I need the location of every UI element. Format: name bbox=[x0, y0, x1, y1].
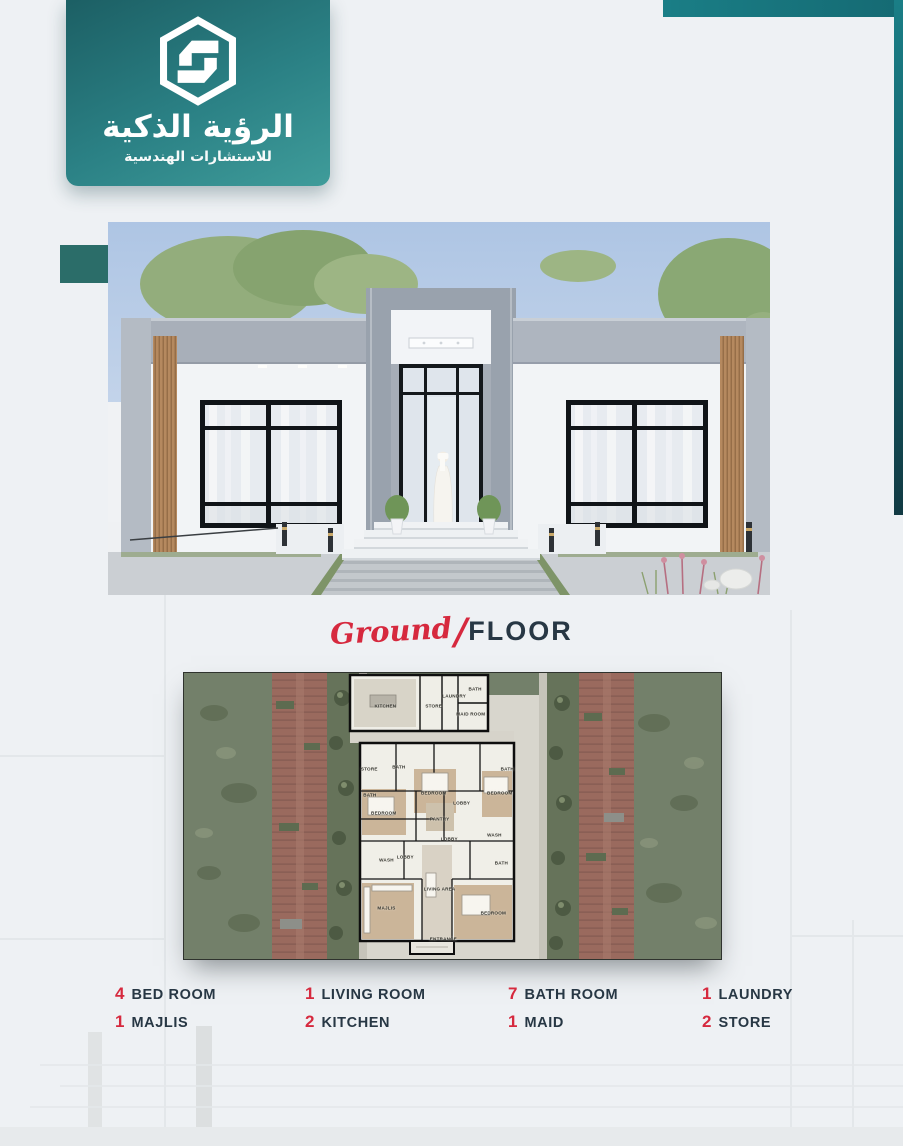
brand-name: الرؤية الذكية bbox=[102, 110, 294, 144]
stat-label: BATH ROOM bbox=[524, 987, 618, 1003]
room-label: BATH bbox=[501, 766, 514, 771]
stat-count: 1 bbox=[702, 984, 711, 1004]
room-label: BATH bbox=[495, 861, 508, 866]
stat-kitchen: 2KITCHEN bbox=[305, 1012, 508, 1032]
room-label: MAJLIS bbox=[377, 905, 395, 910]
stat-count: 2 bbox=[702, 1012, 711, 1032]
stat-count: 4 bbox=[115, 984, 124, 1004]
brand-tagline: للاستشارات الهندسية bbox=[124, 149, 272, 165]
floor-plan-labels: KITCHENSTORELAUNDRYBATHMAID ROOMSTOREBAT… bbox=[184, 673, 721, 959]
teal-accent-square bbox=[60, 245, 108, 283]
background-sketch-right-hline bbox=[790, 935, 903, 937]
floor-plan: KITCHENSTORELAUNDRYBATHMAID ROOMSTOREBAT… bbox=[183, 672, 722, 960]
room-label: LIVING AREA bbox=[424, 886, 456, 891]
stat-bath-room: 7BATH ROOM bbox=[508, 984, 702, 1004]
stat-majlis: 1MAJLIS bbox=[115, 1012, 305, 1032]
stat-count: 1 bbox=[508, 1012, 517, 1032]
stat-label: MAID bbox=[524, 1015, 563, 1031]
room-label: BEDROOM bbox=[487, 791, 512, 796]
stat-label: KITCHEN bbox=[321, 1015, 390, 1031]
room-label: BATH bbox=[392, 765, 405, 770]
house-render bbox=[108, 222, 770, 595]
background-sketch-stripe1 bbox=[40, 1064, 903, 1066]
stat-label: LAUNDRY bbox=[718, 987, 793, 1003]
background-sketch-left-hline1 bbox=[0, 755, 164, 757]
section-title-main: FLOOR bbox=[468, 616, 573, 647]
room-label: LOBBY bbox=[453, 801, 470, 806]
room-label: PANTRY bbox=[430, 816, 450, 821]
stat-label: BED ROOM bbox=[131, 987, 216, 1003]
stat-label: LIVING ROOM bbox=[321, 987, 425, 1003]
stat-count: 7 bbox=[508, 984, 517, 1004]
stat-count: 1 bbox=[115, 1012, 124, 1032]
background-sketch-stripe3 bbox=[30, 1106, 903, 1108]
room-label: BEDROOM bbox=[421, 791, 446, 796]
room-label: BEDROOM bbox=[481, 911, 506, 916]
background-sketch-right-vline2 bbox=[852, 920, 854, 1146]
stat-count: 2 bbox=[305, 1012, 314, 1032]
room-label: BATH bbox=[468, 686, 481, 691]
top-teal-bar bbox=[663, 0, 903, 17]
stat-laundry: 1LAUNDRY bbox=[702, 984, 815, 1004]
poster: الرؤية الذكية للاستشارات الهندسية bbox=[0, 0, 903, 1146]
background-sketch-left-hline2 bbox=[0, 938, 164, 940]
hexagon-s-logo-icon bbox=[150, 14, 246, 108]
stat-label: STORE bbox=[718, 1015, 771, 1031]
stat-maid: 1MAID bbox=[508, 1012, 702, 1032]
brand-badge: الرؤية الذكية للاستشارات الهندسية bbox=[66, 0, 330, 186]
room-label: BEDROOM bbox=[371, 811, 396, 816]
section-title-slash: / bbox=[454, 611, 467, 653]
room-stats: 4BED ROOM 1LIVING ROOM 7BATH ROOM 1LAUND… bbox=[115, 984, 815, 1032]
section-title-script: Ground bbox=[329, 611, 452, 651]
room-label: WASH bbox=[379, 858, 394, 863]
room-label: STORE bbox=[361, 766, 378, 771]
room-label: LOBBY bbox=[441, 836, 458, 841]
room-label: LOBBY bbox=[397, 855, 414, 860]
room-label: WASH bbox=[487, 832, 502, 837]
stat-label: MAJLIS bbox=[131, 1015, 188, 1031]
room-label: ENTRANCE bbox=[430, 936, 457, 941]
background-sketch-bottom-band bbox=[0, 1127, 903, 1146]
room-label: BATH bbox=[363, 792, 376, 797]
stat-store: 2STORE bbox=[702, 1012, 815, 1032]
room-label: MAID ROOM bbox=[456, 712, 485, 717]
right-teal-strip bbox=[894, 0, 903, 515]
house-render-illustration bbox=[108, 222, 770, 595]
section-title: Ground/FLOOR bbox=[0, 608, 903, 650]
room-label: STORE bbox=[425, 703, 442, 708]
room-label: LAUNDRY bbox=[442, 693, 466, 698]
room-label: KITCHEN bbox=[374, 703, 396, 708]
stat-bed-room: 4BED ROOM bbox=[115, 984, 305, 1004]
background-sketch-stripe2 bbox=[60, 1085, 903, 1087]
stat-living-room: 1LIVING ROOM bbox=[305, 984, 508, 1004]
stat-count: 1 bbox=[305, 984, 314, 1004]
